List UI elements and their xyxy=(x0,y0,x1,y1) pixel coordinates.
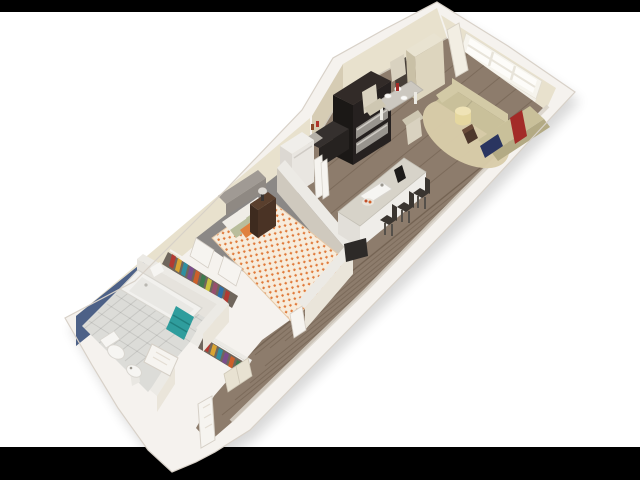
faucet xyxy=(130,367,133,370)
spice-jar xyxy=(316,121,319,127)
tub-drain xyxy=(144,283,147,286)
entry-door xyxy=(198,396,215,448)
letterbox-top xyxy=(0,0,640,12)
fruit-bowl xyxy=(362,198,374,206)
lamp-shade xyxy=(258,187,267,194)
floorplan-screenshot xyxy=(0,0,640,480)
red-candle xyxy=(396,83,399,91)
spice-jar xyxy=(311,124,314,130)
ottoman xyxy=(455,107,471,126)
floorplan-canvas xyxy=(0,0,640,480)
faucet xyxy=(380,183,383,186)
letterbox-bottom xyxy=(0,447,640,480)
plate xyxy=(401,96,408,100)
plate xyxy=(385,94,392,98)
leaning-boards xyxy=(314,155,329,199)
